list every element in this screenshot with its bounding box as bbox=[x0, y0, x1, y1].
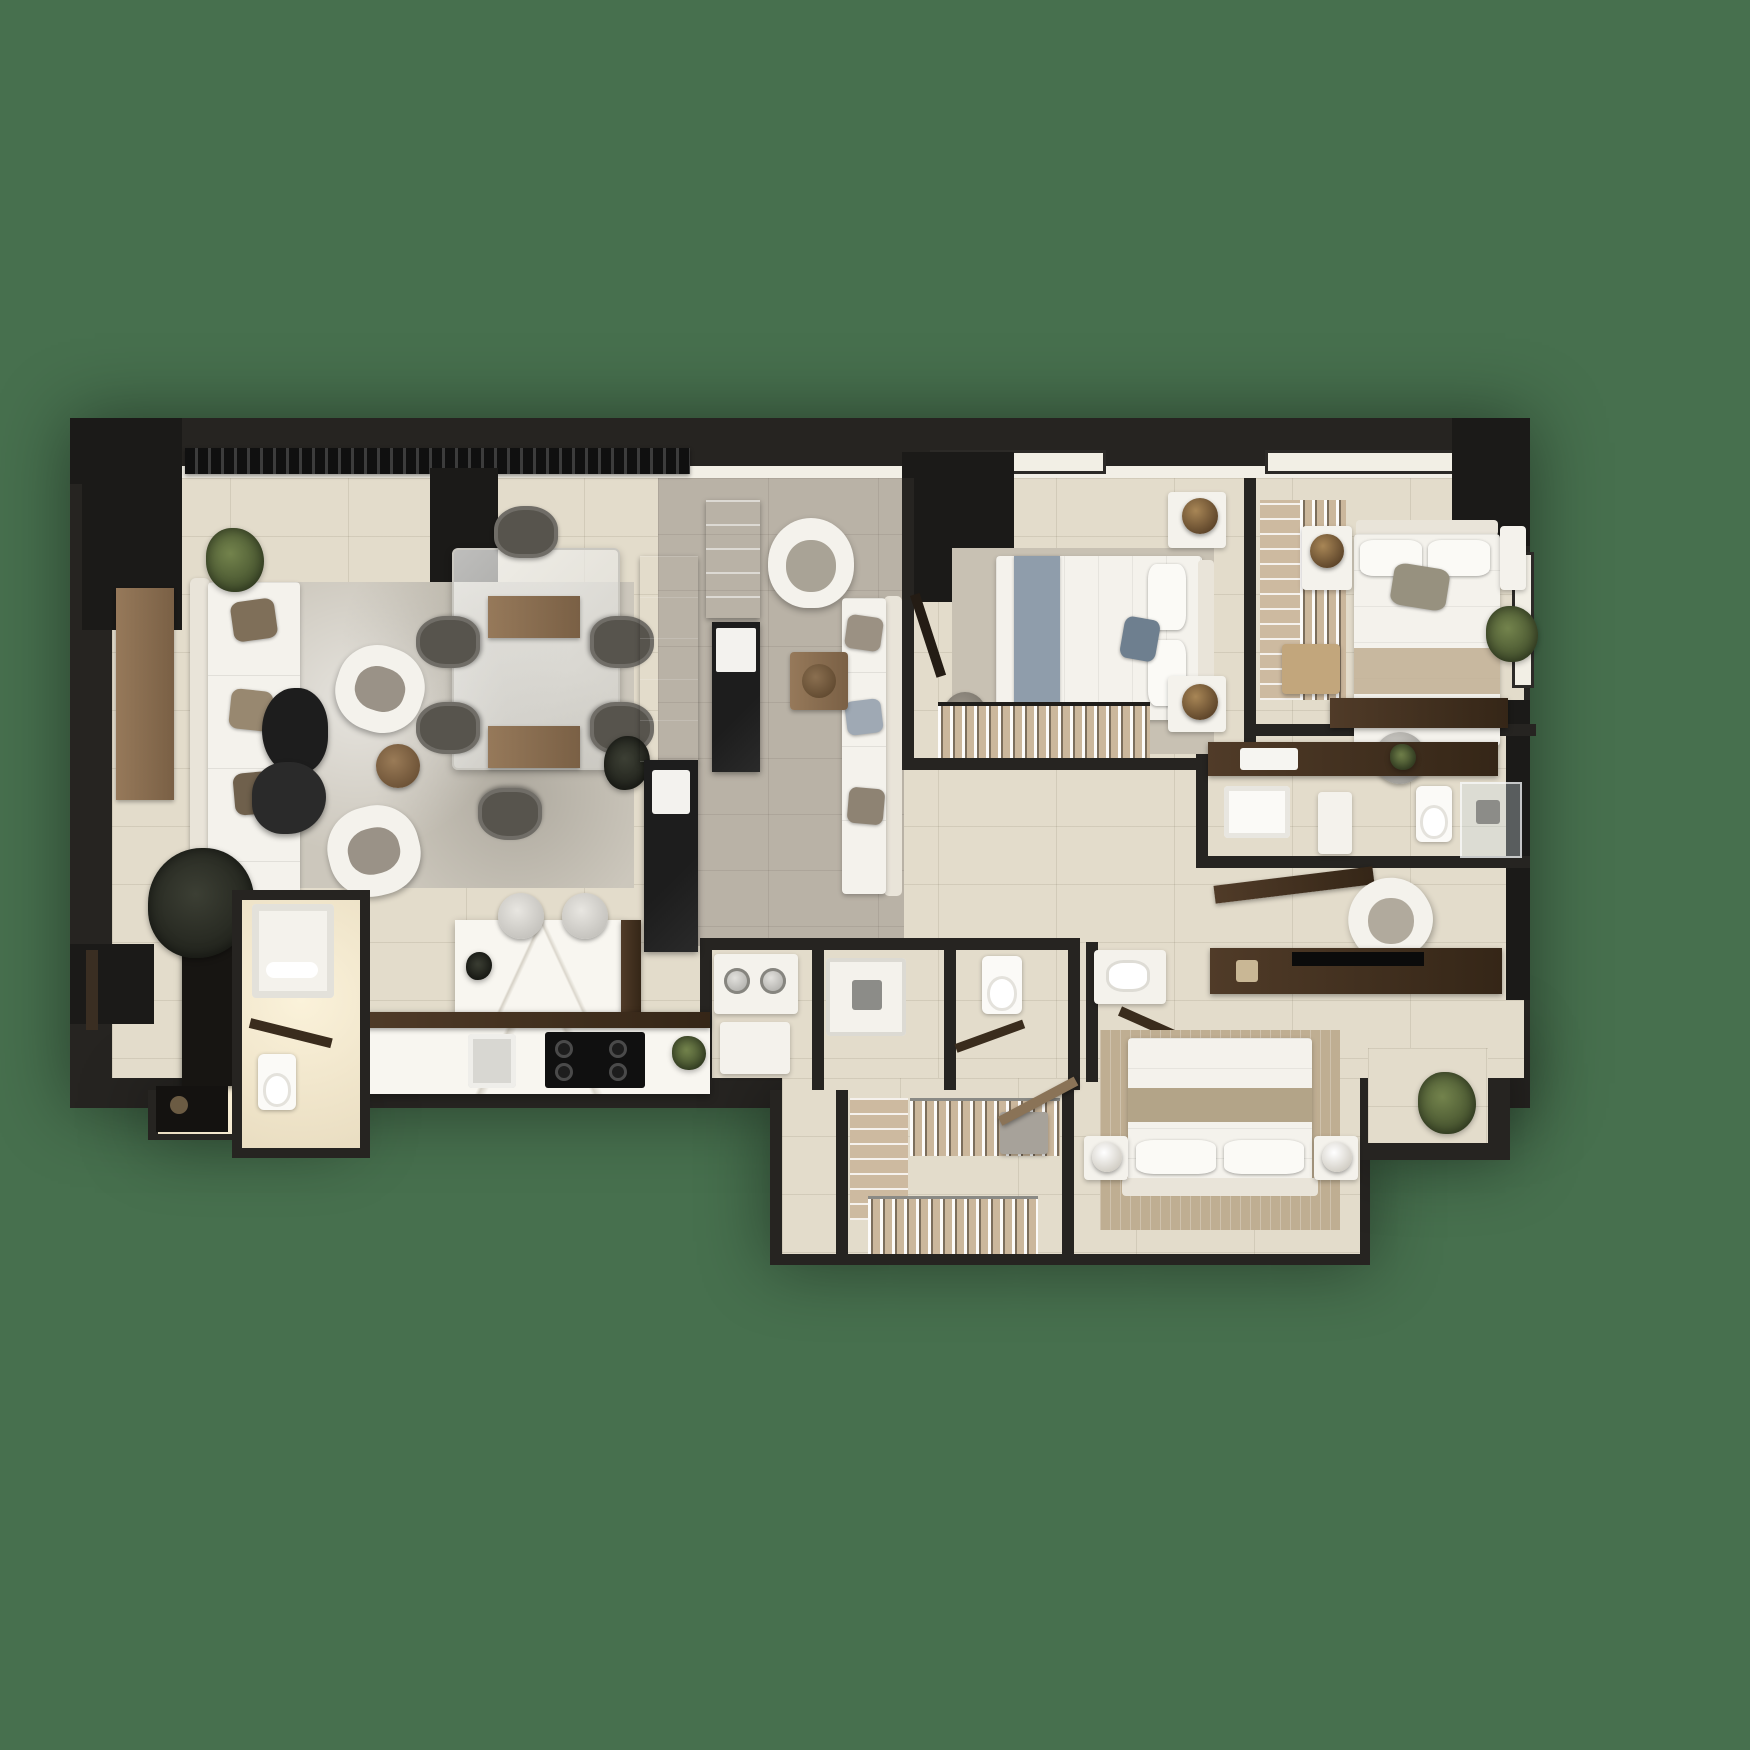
den-cabinet-slab bbox=[716, 628, 756, 672]
bed3-lamp-right bbox=[1322, 1142, 1352, 1172]
wall-closet-right bbox=[1062, 1090, 1074, 1265]
tall-wood-cabinet bbox=[640, 556, 698, 762]
sideboard bbox=[116, 588, 174, 800]
bed2-desk bbox=[1330, 698, 1508, 728]
bed2-throw bbox=[1354, 648, 1500, 694]
window-bedroom2 bbox=[1265, 450, 1471, 474]
entry-console bbox=[156, 1086, 228, 1132]
lounge-chair-seat bbox=[1368, 898, 1414, 944]
bed1-blue-runner bbox=[1014, 556, 1060, 720]
bed2-bench bbox=[1282, 644, 1340, 694]
floor-plan-canvas bbox=[0, 0, 1750, 1750]
den-tray bbox=[802, 664, 836, 698]
bathtub bbox=[252, 904, 334, 998]
herb-plant bbox=[672, 1036, 706, 1070]
bar-stool-2 bbox=[562, 893, 608, 939]
side-table-round bbox=[376, 744, 420, 788]
bathtub-pillow bbox=[266, 962, 318, 978]
bed1-cushion-blue bbox=[1119, 615, 1162, 663]
bathR-shower-head bbox=[1476, 800, 1500, 824]
bed3-pillow-2 bbox=[1224, 1140, 1304, 1174]
bed3-vanity-sink bbox=[1106, 960, 1150, 992]
table-runner-1 bbox=[488, 596, 580, 638]
bed3-headboard bbox=[1122, 1178, 1318, 1196]
washer-dial-2 bbox=[760, 968, 786, 994]
den-pillow-2 bbox=[844, 698, 884, 736]
bar-stool-1 bbox=[498, 893, 544, 939]
bed1-lamp-top bbox=[1182, 498, 1218, 534]
entry-console-bowl bbox=[170, 1096, 188, 1114]
sofa-pillow-1 bbox=[229, 597, 278, 643]
wall-closet-left bbox=[836, 1090, 848, 1265]
dining-chair-left-2 bbox=[416, 702, 480, 754]
bed3-lamp-left bbox=[1092, 1142, 1122, 1172]
wc-toilet bbox=[982, 956, 1022, 1014]
console-speaker bbox=[1236, 960, 1258, 982]
wall-bathR-left bbox=[1196, 736, 1208, 868]
wall-midbath-v3 bbox=[944, 950, 956, 1090]
counter-wood-strip bbox=[356, 1012, 710, 1028]
bathR-sink-box bbox=[1224, 786, 1290, 838]
bed2-nightstand-right bbox=[1500, 526, 1526, 590]
bed3-tan-band bbox=[1128, 1088, 1312, 1122]
bathR-toilet bbox=[1416, 786, 1452, 842]
table-runner-2 bbox=[488, 726, 580, 768]
dining-chair-left-1 bbox=[416, 616, 480, 668]
entry-door bbox=[86, 950, 98, 1030]
bathR-plant bbox=[1390, 744, 1416, 770]
bed2-lamp-left bbox=[1310, 534, 1344, 568]
den-shelf bbox=[706, 500, 760, 618]
closet-rail-bottom bbox=[868, 1196, 1038, 1254]
block-entry-bottom bbox=[70, 944, 154, 1024]
washer-dial-1 bbox=[724, 968, 750, 994]
washer bbox=[714, 954, 798, 1014]
bed3-plant bbox=[1418, 1072, 1476, 1134]
wall-midbath-top bbox=[700, 938, 1080, 950]
coffee-table-1 bbox=[262, 688, 328, 774]
wall-midbath-v2 bbox=[812, 950, 824, 1090]
corner-plant bbox=[206, 528, 264, 592]
den-pillow-1 bbox=[844, 614, 884, 653]
bathR-vanity-sink bbox=[1240, 748, 1298, 770]
bar-sink bbox=[652, 770, 690, 814]
bathR-tub-bench bbox=[1318, 792, 1352, 854]
midbath-shower-head bbox=[852, 980, 882, 1010]
bed1-lamp-bottom bbox=[1182, 684, 1218, 720]
den-pillow-3 bbox=[846, 786, 885, 825]
dining-chair-head-top bbox=[494, 506, 558, 558]
wall-bedroom1-left bbox=[902, 478, 914, 770]
bed2-balcony-plant bbox=[1486, 606, 1538, 662]
bed1-wardrobe bbox=[938, 702, 1150, 758]
bed2-laptop bbox=[1389, 562, 1451, 612]
tv bbox=[1292, 952, 1424, 966]
island-wood-edge bbox=[621, 920, 641, 1014]
cooktop bbox=[545, 1032, 645, 1088]
wall-midbath-right bbox=[1068, 938, 1080, 1090]
dining-chair-head-bottom bbox=[478, 788, 542, 840]
laundry-cabinet bbox=[720, 1022, 790, 1074]
bathL-toilet bbox=[258, 1054, 296, 1110]
den-sofa-back bbox=[884, 596, 902, 896]
bed3-pillow-1 bbox=[1136, 1140, 1216, 1174]
kitchen-sink bbox=[468, 1034, 516, 1088]
curved-chair-seat bbox=[786, 540, 836, 592]
